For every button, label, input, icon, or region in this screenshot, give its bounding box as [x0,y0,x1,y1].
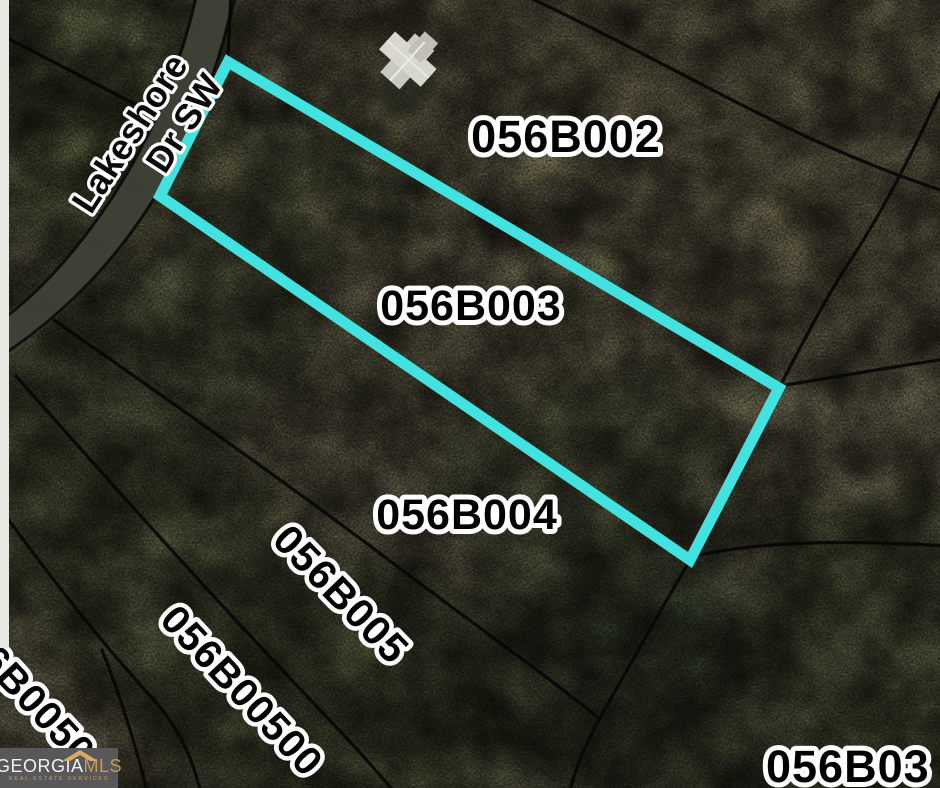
parcel-label-056B03-cut: 056B03 [766,741,930,788]
parcel-label-056B003: 056B003 [380,282,562,330]
parcel-label-056B002: 056B002 [471,111,661,162]
logo-tagline: REAL ESTATE SERVICES [9,777,110,783]
georgia-mls-logo: GEORGIA MLS REAL ESTATE SERVICES [0,748,118,788]
parcel-map[interactable]: 056B002 056B003 056B004 056B005 056B0050… [0,0,940,788]
parcel-label-056B004: 056B004 [376,491,558,539]
aerial-map-canvas: 056B002 056B003 056B004 056B005 056B0050… [0,0,940,788]
roof-icon [61,749,101,762]
imagery-edge-strip [0,0,9,648]
